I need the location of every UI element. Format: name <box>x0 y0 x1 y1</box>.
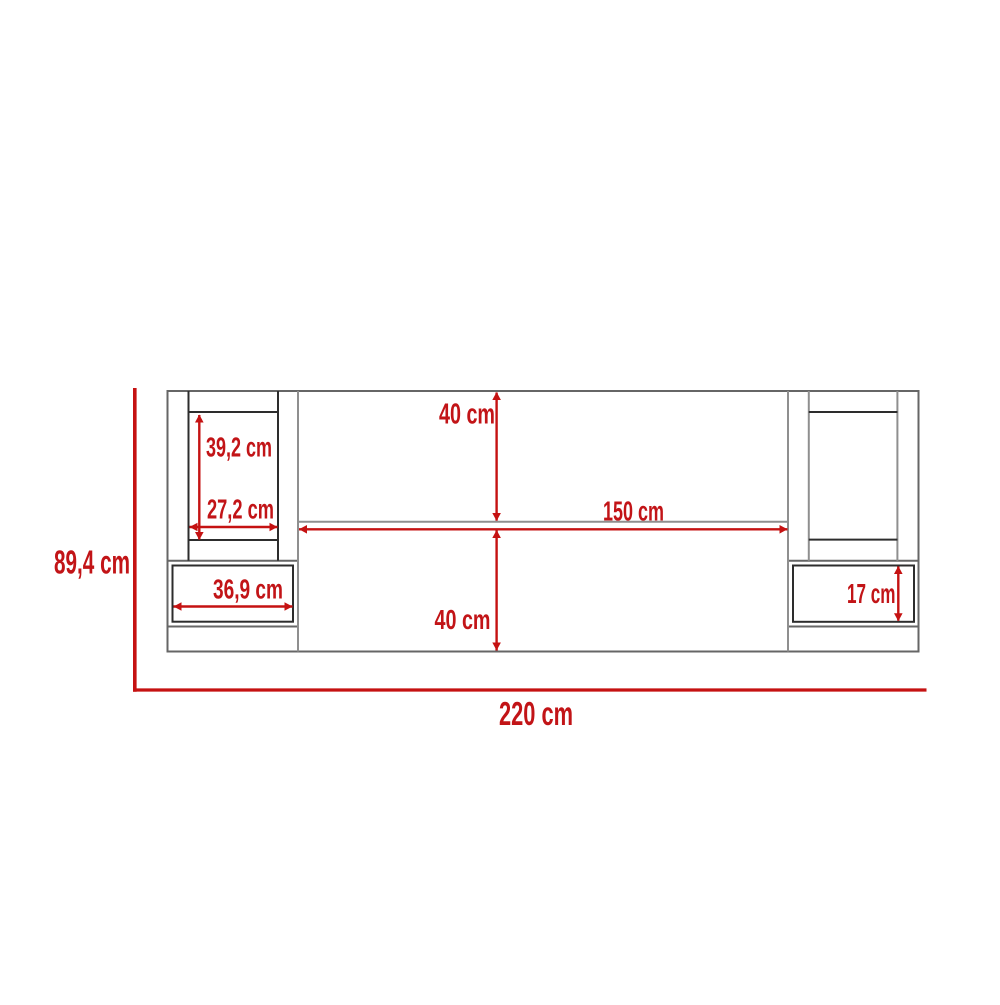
svg-text:89,4 cm: 89,4 cm <box>54 544 130 581</box>
svg-text:40 cm: 40 cm <box>439 399 495 431</box>
svg-text:39,2 cm: 39,2 cm <box>206 432 272 463</box>
svg-text:220 cm: 220 cm <box>499 695 573 732</box>
svg-text:150 cm: 150 cm <box>603 496 664 527</box>
svg-text:17 cm: 17 cm <box>847 578 896 609</box>
svg-text:36,9 cm: 36,9 cm <box>213 574 283 605</box>
svg-text:27,2 cm: 27,2 cm <box>207 493 274 524</box>
svg-text:40 cm: 40 cm <box>435 604 491 635</box>
